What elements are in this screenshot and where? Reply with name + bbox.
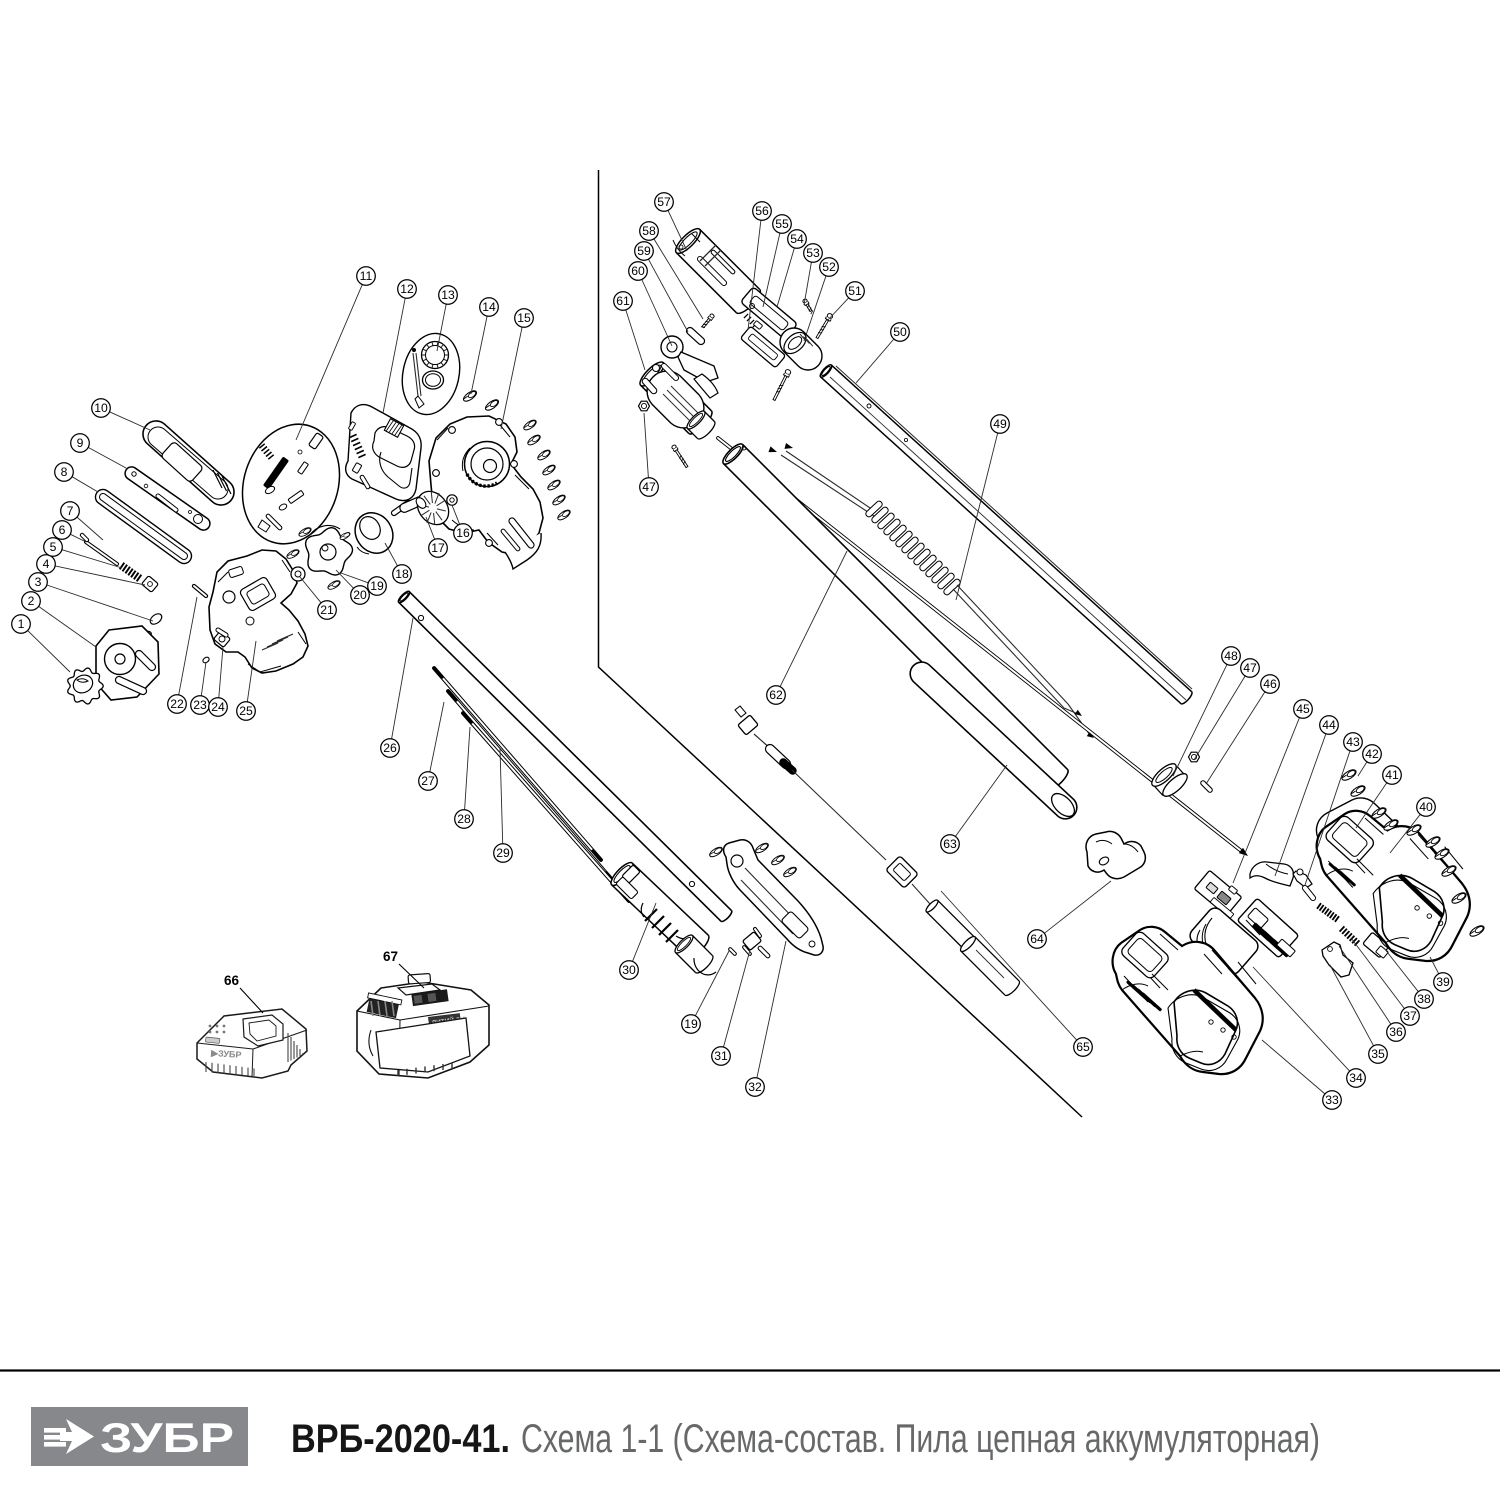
svg-text:9: 9 bbox=[77, 436, 84, 450]
svg-text:62: 62 bbox=[769, 688, 783, 702]
svg-text:45: 45 bbox=[1296, 702, 1310, 716]
svg-text:10: 10 bbox=[94, 401, 108, 415]
svg-text:15: 15 bbox=[517, 311, 531, 325]
svg-text:31: 31 bbox=[714, 1049, 728, 1063]
svg-text:50: 50 bbox=[893, 325, 907, 339]
svg-text:14: 14 bbox=[482, 300, 496, 314]
svg-text:29: 29 bbox=[496, 846, 510, 860]
svg-text:17: 17 bbox=[431, 541, 445, 555]
svg-text:46: 46 bbox=[1263, 677, 1277, 691]
svg-text:32: 32 bbox=[748, 1080, 762, 1094]
svg-text:7: 7 bbox=[67, 504, 74, 518]
svg-text:60: 60 bbox=[631, 264, 645, 278]
svg-text:43: 43 bbox=[1346, 735, 1360, 749]
svg-text:44: 44 bbox=[1322, 718, 1336, 732]
svg-text:11: 11 bbox=[360, 269, 373, 283]
svg-text:12: 12 bbox=[400, 282, 414, 296]
svg-text:63: 63 bbox=[943, 837, 957, 851]
svg-text:36: 36 bbox=[1389, 1025, 1403, 1039]
svg-text:54: 54 bbox=[790, 232, 804, 246]
svg-text:5: 5 bbox=[50, 540, 57, 554]
svg-text:52: 52 bbox=[822, 260, 836, 274]
svg-text:8: 8 bbox=[61, 465, 68, 479]
svg-text:Схема 1-1 (Схема-состав. Пила: Схема 1-1 (Схема-состав. Пила цепная акк… bbox=[521, 1417, 1320, 1461]
svg-text:37: 37 bbox=[1403, 1009, 1417, 1023]
svg-text:27: 27 bbox=[421, 774, 435, 788]
svg-text:20: 20 bbox=[353, 588, 367, 602]
svg-text:ЗУБР: ЗУБР bbox=[100, 1414, 234, 1461]
svg-text:42: 42 bbox=[1365, 747, 1379, 761]
svg-text:30: 30 bbox=[622, 963, 636, 977]
svg-text:67: 67 bbox=[383, 949, 398, 964]
svg-text:53: 53 bbox=[806, 246, 820, 260]
svg-text:55: 55 bbox=[775, 217, 789, 231]
svg-text:58: 58 bbox=[642, 224, 656, 238]
svg-text:16: 16 bbox=[456, 526, 470, 540]
svg-text:47: 47 bbox=[1243, 661, 1257, 675]
svg-text:4: 4 bbox=[43, 557, 50, 571]
svg-text:22: 22 bbox=[170, 697, 184, 711]
svg-text:26: 26 bbox=[383, 741, 397, 755]
svg-text:23: 23 bbox=[193, 698, 207, 712]
svg-text:51: 51 bbox=[848, 284, 862, 298]
svg-text:39: 39 bbox=[1436, 975, 1450, 989]
svg-text:49: 49 bbox=[993, 417, 1007, 431]
svg-text:28: 28 bbox=[457, 812, 471, 826]
svg-text:3: 3 bbox=[35, 575, 42, 589]
svg-text:24: 24 bbox=[211, 700, 225, 714]
svg-text:40: 40 bbox=[1419, 800, 1433, 814]
svg-text:35: 35 bbox=[1371, 1047, 1385, 1061]
svg-text:25: 25 bbox=[239, 704, 253, 718]
svg-text:59: 59 bbox=[637, 244, 651, 258]
svg-text:19: 19 bbox=[370, 579, 384, 593]
svg-text:21: 21 bbox=[320, 603, 334, 617]
svg-text:33: 33 bbox=[1325, 1093, 1339, 1107]
svg-text:18: 18 bbox=[395, 567, 409, 581]
svg-text:65: 65 bbox=[1076, 1040, 1090, 1054]
svg-text:48: 48 bbox=[1224, 649, 1238, 663]
svg-text:1: 1 bbox=[18, 617, 25, 631]
svg-text:38: 38 bbox=[1417, 992, 1431, 1006]
svg-text:56: 56 bbox=[755, 204, 769, 218]
svg-text:66: 66 bbox=[224, 973, 240, 988]
svg-text:57: 57 bbox=[657, 195, 671, 209]
svg-text:19: 19 bbox=[684, 1017, 698, 1031]
svg-text:47: 47 bbox=[642, 480, 656, 494]
svg-text:61: 61 bbox=[616, 294, 630, 308]
svg-text:13: 13 bbox=[441, 288, 455, 302]
svg-text:ВРБ-2020-41.: ВРБ-2020-41. bbox=[291, 1417, 510, 1461]
svg-text:2: 2 bbox=[28, 594, 35, 608]
svg-text:41: 41 bbox=[1385, 768, 1399, 782]
svg-text:34: 34 bbox=[1349, 1071, 1363, 1085]
svg-text:64: 64 bbox=[1030, 932, 1044, 946]
svg-text:6: 6 bbox=[59, 523, 66, 537]
